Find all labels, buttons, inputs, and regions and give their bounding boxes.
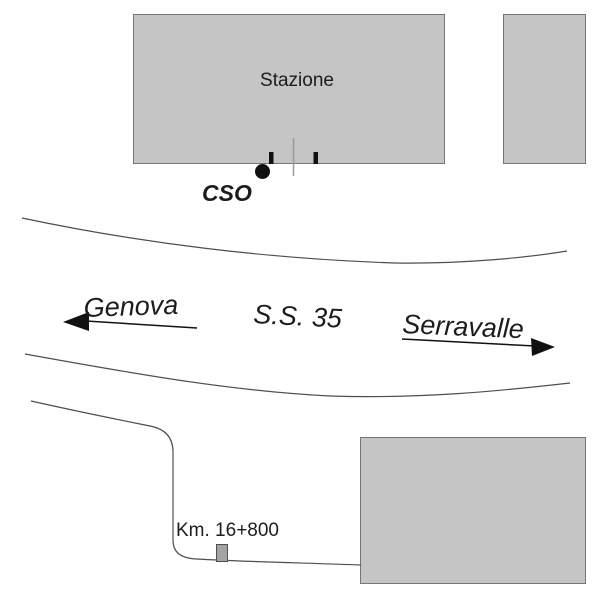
building-top-right [504, 15, 586, 164]
station-label: Stazione [260, 70, 334, 91]
right-arrowhead-icon [531, 338, 555, 356]
km-label: Km. 16+800 [176, 520, 279, 541]
main-road-upper-edge [22, 218, 567, 263]
cso-point-dot [255, 164, 270, 179]
map-drawing: Stazione CSO Genova S.S. 35 Serravalle K… [0, 0, 600, 600]
destination-genova-label: Genova [83, 290, 179, 323]
road-name-label: S.S. 35 [253, 299, 344, 334]
platform-tick-right [314, 152, 319, 164]
cso-label: CSO [202, 180, 252, 206]
building-bottom-right [361, 438, 586, 584]
main-road-lower-edge [25, 354, 570, 397]
destination-serravalle-label: Serravalle [402, 309, 525, 344]
km-post-marker [217, 545, 228, 562]
platform-tick-left [269, 152, 274, 164]
road-sketch-map: Stazione CSO Genova S.S. 35 Serravalle K… [0, 0, 600, 600]
